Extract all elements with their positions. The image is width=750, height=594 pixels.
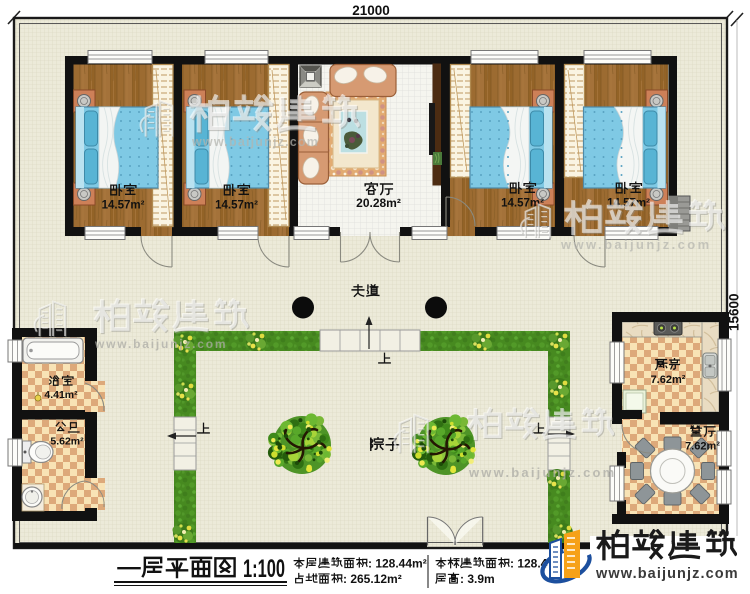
svg-text:21000: 21000 bbox=[352, 3, 390, 18]
svg-text:www.baijunjz.com: www.baijunjz.com bbox=[560, 237, 712, 252]
svg-text:: 128.44m²: : 128.44m² bbox=[368, 557, 427, 571]
svg-text:www.baijunjz.com: www.baijunjz.com bbox=[468, 465, 616, 480]
svg-text:www.baijunjz.com: www.baijunjz.com bbox=[191, 135, 319, 149]
svg-text:7.62m²: 7.62m² bbox=[651, 374, 686, 386]
svg-text:5.62m²: 5.62m² bbox=[50, 436, 84, 448]
svg-text:: 3.9m: : 3.9m bbox=[460, 572, 495, 586]
svg-text:www.baijunjz.com: www.baijunjz.com bbox=[94, 337, 227, 351]
svg-text:14.57m²: 14.57m² bbox=[215, 200, 258, 212]
svg-text:4.41m²: 4.41m² bbox=[44, 389, 78, 401]
svg-text:7.62m²: 7.62m² bbox=[685, 441, 720, 453]
svg-text:20.28m²: 20.28m² bbox=[356, 196, 401, 210]
svg-text:: 265.12m²: : 265.12m² bbox=[343, 572, 402, 586]
svg-text:www.baijunjz.com: www.baijunjz.com bbox=[595, 566, 739, 582]
svg-text:1:100: 1:100 bbox=[243, 555, 285, 583]
svg-text:14.57m²: 14.57m² bbox=[102, 200, 145, 212]
